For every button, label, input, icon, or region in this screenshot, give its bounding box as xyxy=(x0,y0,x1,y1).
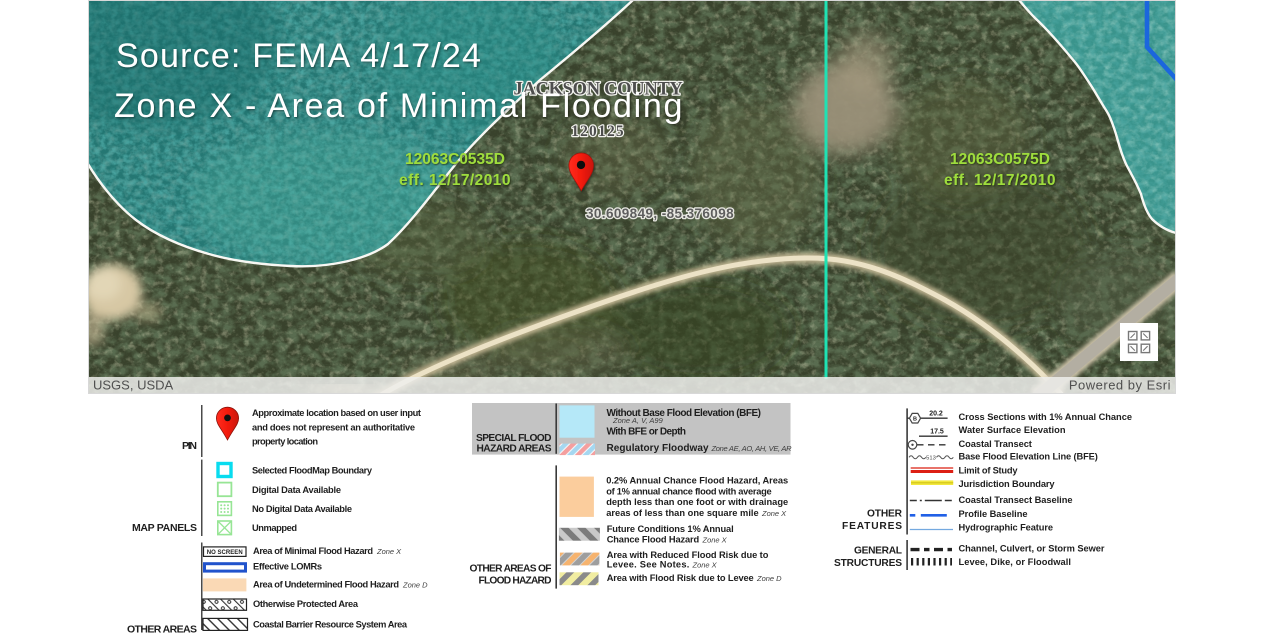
svg-text:and does not represent an auth: and does not represent an authoritative xyxy=(252,422,415,432)
svg-text:eff. 12/17/2010: eff. 12/17/2010 xyxy=(399,172,511,189)
svg-text:Effective LOMRs: Effective LOMRs xyxy=(253,562,322,572)
svg-text:OTHER: OTHER xyxy=(867,509,903,520)
svg-text:Zone AE, AO, AH, VE, AR: Zone AE, AO, AH, VE, AR xyxy=(711,444,793,453)
svg-text:Area of Undetermined Flood Haz: Area of Undetermined Flood Hazard xyxy=(253,580,399,590)
svg-text:Chance Flood Hazard: Chance Flood Hazard xyxy=(607,535,700,545)
svg-text:B: B xyxy=(913,417,917,423)
svg-text:Zone X - Area of Minimal Flood: Zone X - Area of Minimal Flooding xyxy=(114,87,684,125)
svg-text:SPECIAL FLOOD: SPECIAL FLOOD xyxy=(476,433,552,444)
svg-text:Zone X: Zone X xyxy=(702,536,728,545)
svg-text:513: 513 xyxy=(926,455,936,461)
svg-text:Source: FEMA 4/17/24: Source: FEMA 4/17/24 xyxy=(116,37,482,75)
svg-text:Zone X: Zone X xyxy=(761,509,787,518)
svg-text:Zone D: Zone D xyxy=(402,581,428,590)
svg-text:Approximate location based on: Approximate location based on user input xyxy=(252,408,421,418)
svg-text:Zone A, V, A99: Zone A, V, A99 xyxy=(612,416,664,425)
svg-text:FEATURES: FEATURES xyxy=(842,521,902,532)
svg-text:120125: 120125 xyxy=(571,123,625,140)
svg-text:Levee, Dike, or Floodwall: Levee, Dike, or Floodwall xyxy=(959,557,1072,567)
svg-text:Zone X: Zone X xyxy=(692,560,718,569)
svg-text:USGS, USDA: USGS, USDA xyxy=(93,378,174,393)
svg-text:MAP PANELS: MAP PANELS xyxy=(132,522,197,534)
svg-text:PIN: PIN xyxy=(182,440,197,452)
svg-text:HAZARD AREAS: HAZARD AREAS xyxy=(477,443,552,454)
svg-text:Selected FloodMap Boundary: Selected FloodMap Boundary xyxy=(252,466,373,476)
svg-text:OTHER AREAS: OTHER AREAS xyxy=(127,623,197,635)
svg-text:Water Surface Elevation: Water Surface Elevation xyxy=(959,425,1066,435)
svg-text:NO SCREEN: NO SCREEN xyxy=(207,550,243,556)
svg-text:Coastal Transect Baseline: Coastal Transect Baseline xyxy=(959,495,1073,505)
svg-text:Regulatory Floodway: Regulatory Floodway xyxy=(607,443,709,454)
svg-text:Future Conditions 1% Annual: Future Conditions 1% Annual xyxy=(607,524,734,534)
svg-text:of 1% annual chance flood with: of 1% annual chance flood with average xyxy=(606,486,772,496)
svg-text:STRUCTURES: STRUCTURES xyxy=(834,558,902,569)
svg-text:20.2: 20.2 xyxy=(929,411,943,418)
svg-text:property location: property location xyxy=(252,436,318,446)
svg-text:Coastal Barrier Resource Syste: Coastal Barrier Resource System Area xyxy=(253,619,408,629)
svg-text:12063C0575D: 12063C0575D xyxy=(950,151,1050,168)
svg-text:GENERAL: GENERAL xyxy=(854,546,902,557)
svg-text:Levee. See Notes.: Levee. See Notes. xyxy=(607,559,690,569)
svg-text:30.609849, -85.376098: 30.609849, -85.376098 xyxy=(586,206,734,221)
svg-text:FLOOD HAZARD: FLOOD HAZARD xyxy=(479,575,552,586)
svg-text:Profile Baseline: Profile Baseline xyxy=(959,509,1028,519)
svg-text:0.2% Annual Chance Flood Hazar: 0.2% Annual Chance Flood Hazard, Areas xyxy=(606,476,788,486)
svg-text:No Digital Data Available: No Digital Data Available xyxy=(252,504,352,514)
svg-text:Area with Flood Risk due to Le: Area with Flood Risk due to Levee xyxy=(607,573,754,583)
svg-text:Hydrographic Feature: Hydrographic Feature xyxy=(959,522,1054,532)
svg-text:eff. 12/17/2010: eff. 12/17/2010 xyxy=(944,172,1056,189)
svg-text:Digital Data Available: Digital Data Available xyxy=(252,485,341,495)
svg-text:areas of less than one square: areas of less than one square mile xyxy=(606,508,759,518)
svg-text:Coastal Transect: Coastal Transect xyxy=(959,439,1032,449)
svg-text:Base Flood Elevation Line (BFE: Base Flood Elevation Line (BFE) xyxy=(959,451,1098,461)
svg-text:12063C0535D: 12063C0535D xyxy=(405,151,505,168)
svg-text:17.5: 17.5 xyxy=(930,429,944,436)
svg-text:Cross Sections with 1% Annual: Cross Sections with 1% Annual Chance xyxy=(959,412,1133,422)
svg-text:Zone D: Zone D xyxy=(756,574,782,583)
svg-text:depth less than one foot or wi: depth less than one foot or with drainag… xyxy=(606,497,788,507)
svg-text:Area of Minimal Flood Hazard: Area of Minimal Flood Hazard xyxy=(253,546,373,556)
svg-text:Powered by Esri: Powered by Esri xyxy=(1069,378,1171,393)
svg-text:Jurisdiction Boundary: Jurisdiction Boundary xyxy=(959,479,1056,489)
svg-text:With BFE or Depth: With BFE or Depth xyxy=(607,427,687,438)
svg-text:Zone X: Zone X xyxy=(376,547,402,556)
svg-text:Otherwise Protected Area: Otherwise Protected Area xyxy=(253,599,359,609)
svg-text:Unmapped: Unmapped xyxy=(252,523,297,533)
svg-text:OTHER AREAS OF: OTHER AREAS OF xyxy=(470,564,552,575)
svg-text:Channel, Culvert, or Storm Sew: Channel, Culvert, or Storm Sewer xyxy=(959,543,1105,553)
svg-text:Limit of Study: Limit of Study xyxy=(959,465,1019,475)
